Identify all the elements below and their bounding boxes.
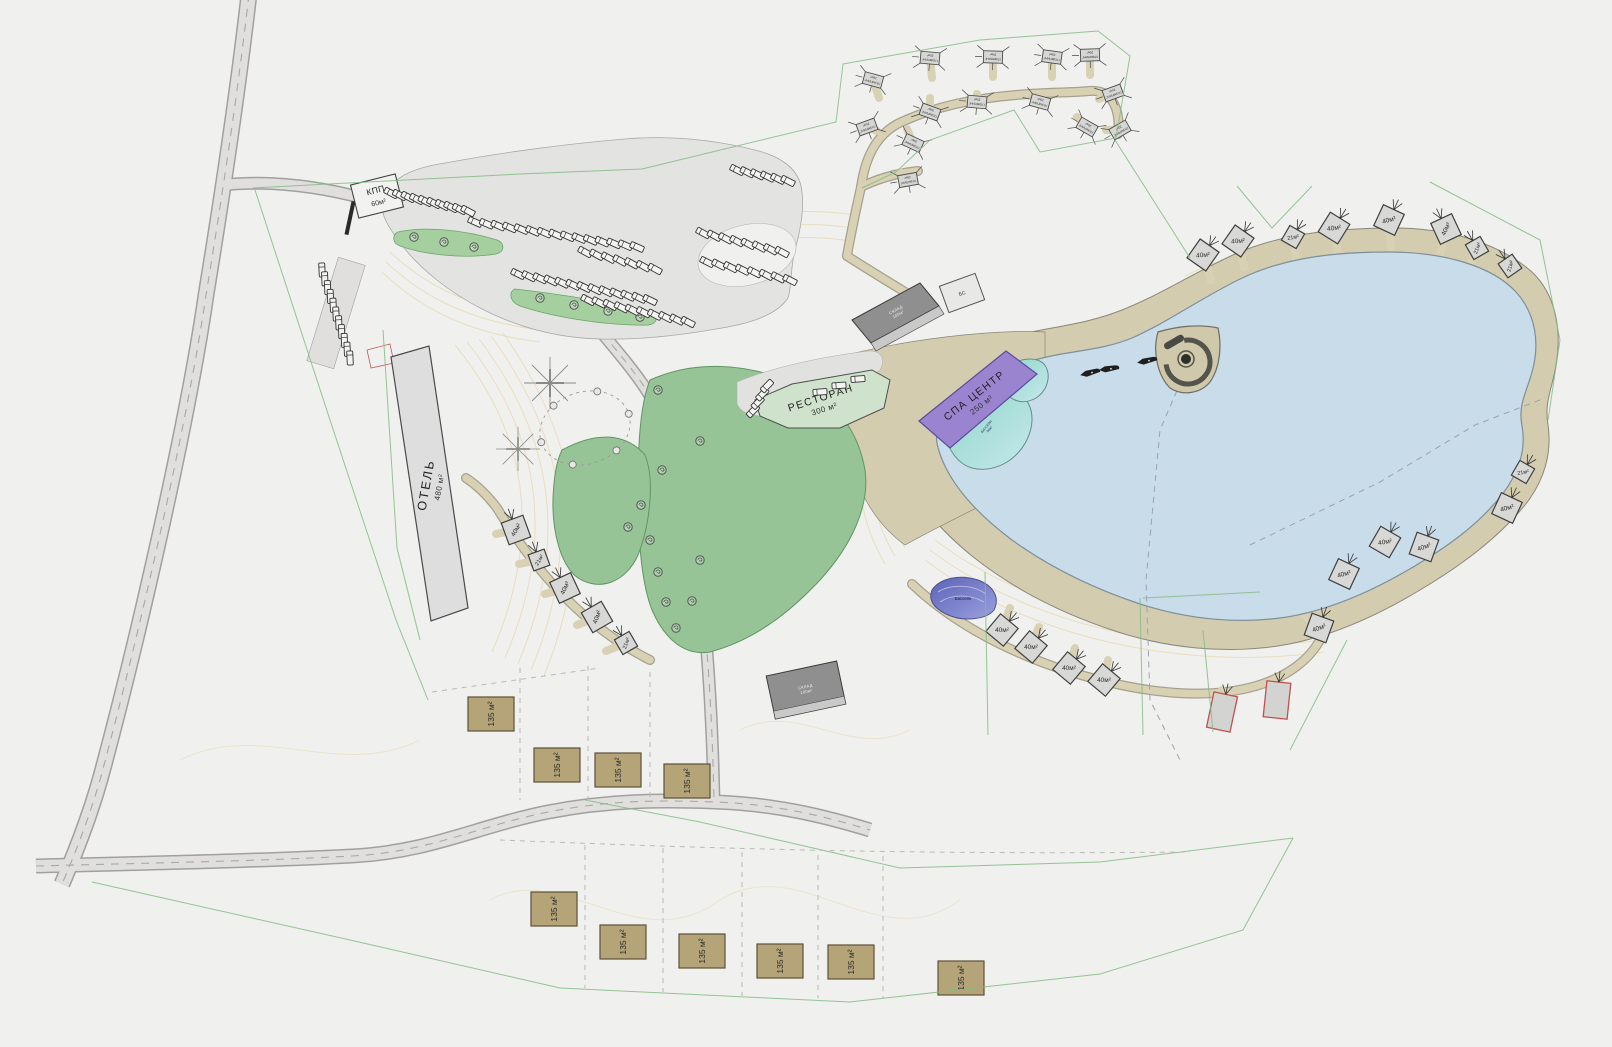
cottage: 135 м² (595, 753, 641, 787)
tree-icon (624, 523, 632, 531)
cottage-area-label: 135 м² (549, 896, 559, 921)
cottage: 135 м² (664, 764, 710, 798)
tent-label-line2: 20м² (974, 97, 981, 102)
tree-icon (696, 437, 704, 445)
tent-label-line2: 20м² (927, 53, 934, 58)
cabin-area-label: 40м² (995, 627, 1010, 634)
cottage: 135 м² (757, 944, 803, 978)
tree-icon (570, 301, 578, 309)
site-masterplan: БАССЕЙН 50м² БАССЕЙН 50м² Бассейн ОТЕЛЬ … (0, 0, 1612, 1047)
tree-icon (637, 501, 645, 509)
cottage-area-label: 135 м² (697, 938, 707, 963)
tree-icon (654, 568, 662, 576)
tree-icon (470, 243, 478, 251)
cabin-area-label: 40м² (1231, 237, 1246, 245)
tree-icon (536, 294, 544, 302)
pond-label: Бассейн (955, 596, 972, 601)
parked-car (851, 376, 865, 383)
cottage-area-label: 135 м² (682, 768, 692, 793)
pier-umbrella (1181, 354, 1191, 364)
tree-icon (410, 233, 418, 241)
cottage-area-label: 135 м² (956, 965, 966, 990)
cottage: 135 м² (828, 945, 874, 979)
cottage-area-label: 135 м² (613, 757, 623, 782)
parked-car (347, 351, 354, 365)
tree-icon (440, 238, 448, 246)
cottage: 135 м² (600, 925, 646, 959)
tent-label-line2: 20м² (990, 52, 997, 56)
tree-icon (672, 624, 680, 632)
cabin-area-label: 40м² (1024, 644, 1039, 651)
tree-icon (654, 386, 662, 394)
cabin-area-label: 40м² (1196, 251, 1211, 259)
cottage: 135 м² (468, 697, 514, 731)
cabin-area-label: 40м² (1097, 677, 1112, 684)
tree-icon (646, 536, 654, 544)
cabin-area-label: 40м² (1062, 665, 1077, 672)
masterplan-svg: БАССЕЙН 50м² БАССЕЙН 50м² Бассейн ОТЕЛЬ … (0, 0, 1612, 1047)
parked-car (813, 389, 827, 396)
cottage-area-label: 135 м² (552, 752, 562, 777)
cottage: 135 м² (531, 892, 577, 926)
tree-icon (658, 466, 666, 474)
cottage-area-label: 135 м² (486, 701, 496, 726)
tree-icon (662, 598, 670, 606)
cottage: 135 м² (679, 934, 725, 968)
cottage: 135 м² (534, 748, 580, 782)
parked-car (832, 382, 846, 389)
cottage-area-label: 135 м² (618, 929, 628, 954)
tree-icon (688, 597, 696, 605)
tree-icon (696, 556, 704, 564)
cottage-area-label: 135 м² (846, 949, 856, 974)
tent-label-line2: 20м² (1087, 50, 1094, 54)
cottage-area-label: 135 м² (775, 948, 785, 973)
